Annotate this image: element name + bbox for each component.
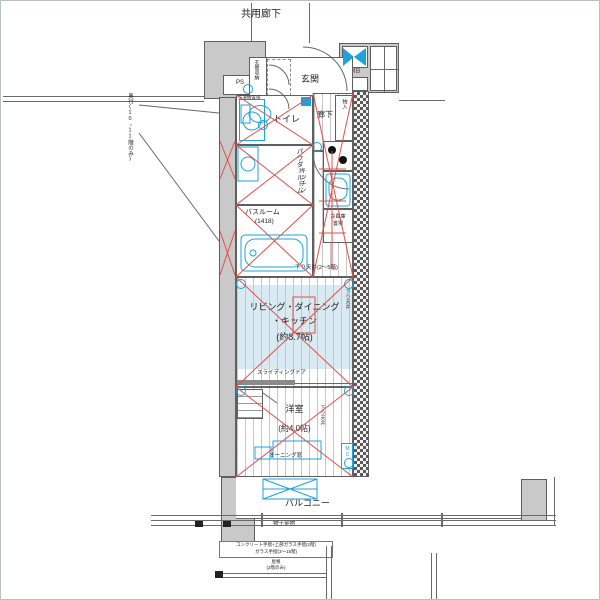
handrail-note-1: コンクリート手摺+上部ガラス手摺(2階) [220, 543, 332, 548]
bathroom-size: (1418) [255, 218, 274, 225]
hall-cabinet-label: 物入 [341, 99, 347, 109]
western-room-label: 洋室 [241, 405, 348, 415]
handrail-line [151, 525, 556, 526]
entrance-label: 玄関 [301, 75, 319, 85]
handrail-post [261, 513, 263, 527]
kitchen-label: キッチン [298, 167, 305, 193]
sliding-door-leaf [237, 380, 295, 385]
leader-line [139, 133, 219, 241]
wall-outer-hatched [353, 91, 369, 477]
western-room-size: (約4.0帖) [241, 425, 348, 434]
balcony [236, 477, 521, 519]
balcony-label: バルコニー [285, 499, 330, 509]
wall-left [219, 97, 236, 477]
handrail-line [151, 515, 556, 516]
lower-frame-mark [215, 571, 223, 578]
washer-box [239, 99, 265, 141]
ldk-label-2: ・キッチン [238, 317, 351, 327]
handrail-post [441, 513, 443, 527]
lower-frame-line [215, 573, 327, 574]
lower-frame-vertical [326, 546, 327, 599]
ldk-floor [237, 285, 352, 369]
lower-frame-vertical [431, 553, 432, 599]
sink-counter [323, 171, 353, 209]
handrail-note-2: ガラス手摺(3〜15階) [220, 550, 332, 555]
hallway-label: 廊下 [317, 111, 333, 120]
rail-end-mark [223, 521, 231, 527]
roof-note-2: (2階のみ) [220, 566, 332, 571]
dropped-ceiling-side-ldk: 下り天井 [344, 289, 350, 309]
leader-line [139, 105, 219, 113]
fridge-label-1: 冷蔵庫 [325, 215, 351, 221]
dropped-ceiling-low: 下り天井(2〜5階) [295, 265, 338, 271]
boundary-line [3, 101, 204, 102]
entrance-storage-label: 玄関収納 [253, 60, 259, 80]
corridor-wall-right [309, 3, 310, 43]
depth-note: 奥行(10・11階のみ) [127, 93, 133, 162]
washer-label: 洗濯機置場 [238, 96, 261, 101]
bathroom-label: バスルーム [245, 209, 280, 217]
lower-frame-vertical [436, 553, 437, 599]
awning-window-label: オーニング窓 [269, 453, 302, 459]
boundary-line [3, 96, 204, 97]
fridge-label-2: 置場 [325, 222, 351, 228]
rail-end-mark [195, 521, 203, 527]
stove-unit [323, 141, 353, 171]
floor-plan: 共用廊下 MB PS 玄関 玄関収納 洗濯機置場 トイレ 廊下 物入 パウダール… [0, 0, 600, 600]
handrail-post [341, 513, 343, 527]
meter-grid [370, 46, 397, 91]
sliding-door-label: スライディングドア [257, 370, 306, 376]
mc-label: MC [344, 446, 350, 458]
lower-frame-vertical [331, 546, 332, 599]
dropped-ceiling-side-west: 下り天井 [319, 405, 325, 425]
handrail-line [151, 520, 556, 521]
boundary-line [399, 100, 445, 101]
ldk-size: (約8.7帖) [238, 333, 351, 343]
lower-frame-line [215, 577, 327, 578]
toilet-label: トイレ [273, 115, 300, 125]
common-corridor-label: 共用廊下 [241, 9, 281, 20]
balcony-right-edge [554, 477, 555, 525]
meter-grid-divider [371, 69, 398, 70]
ldk-label-1: リビング・ダイニング [238, 303, 351, 313]
